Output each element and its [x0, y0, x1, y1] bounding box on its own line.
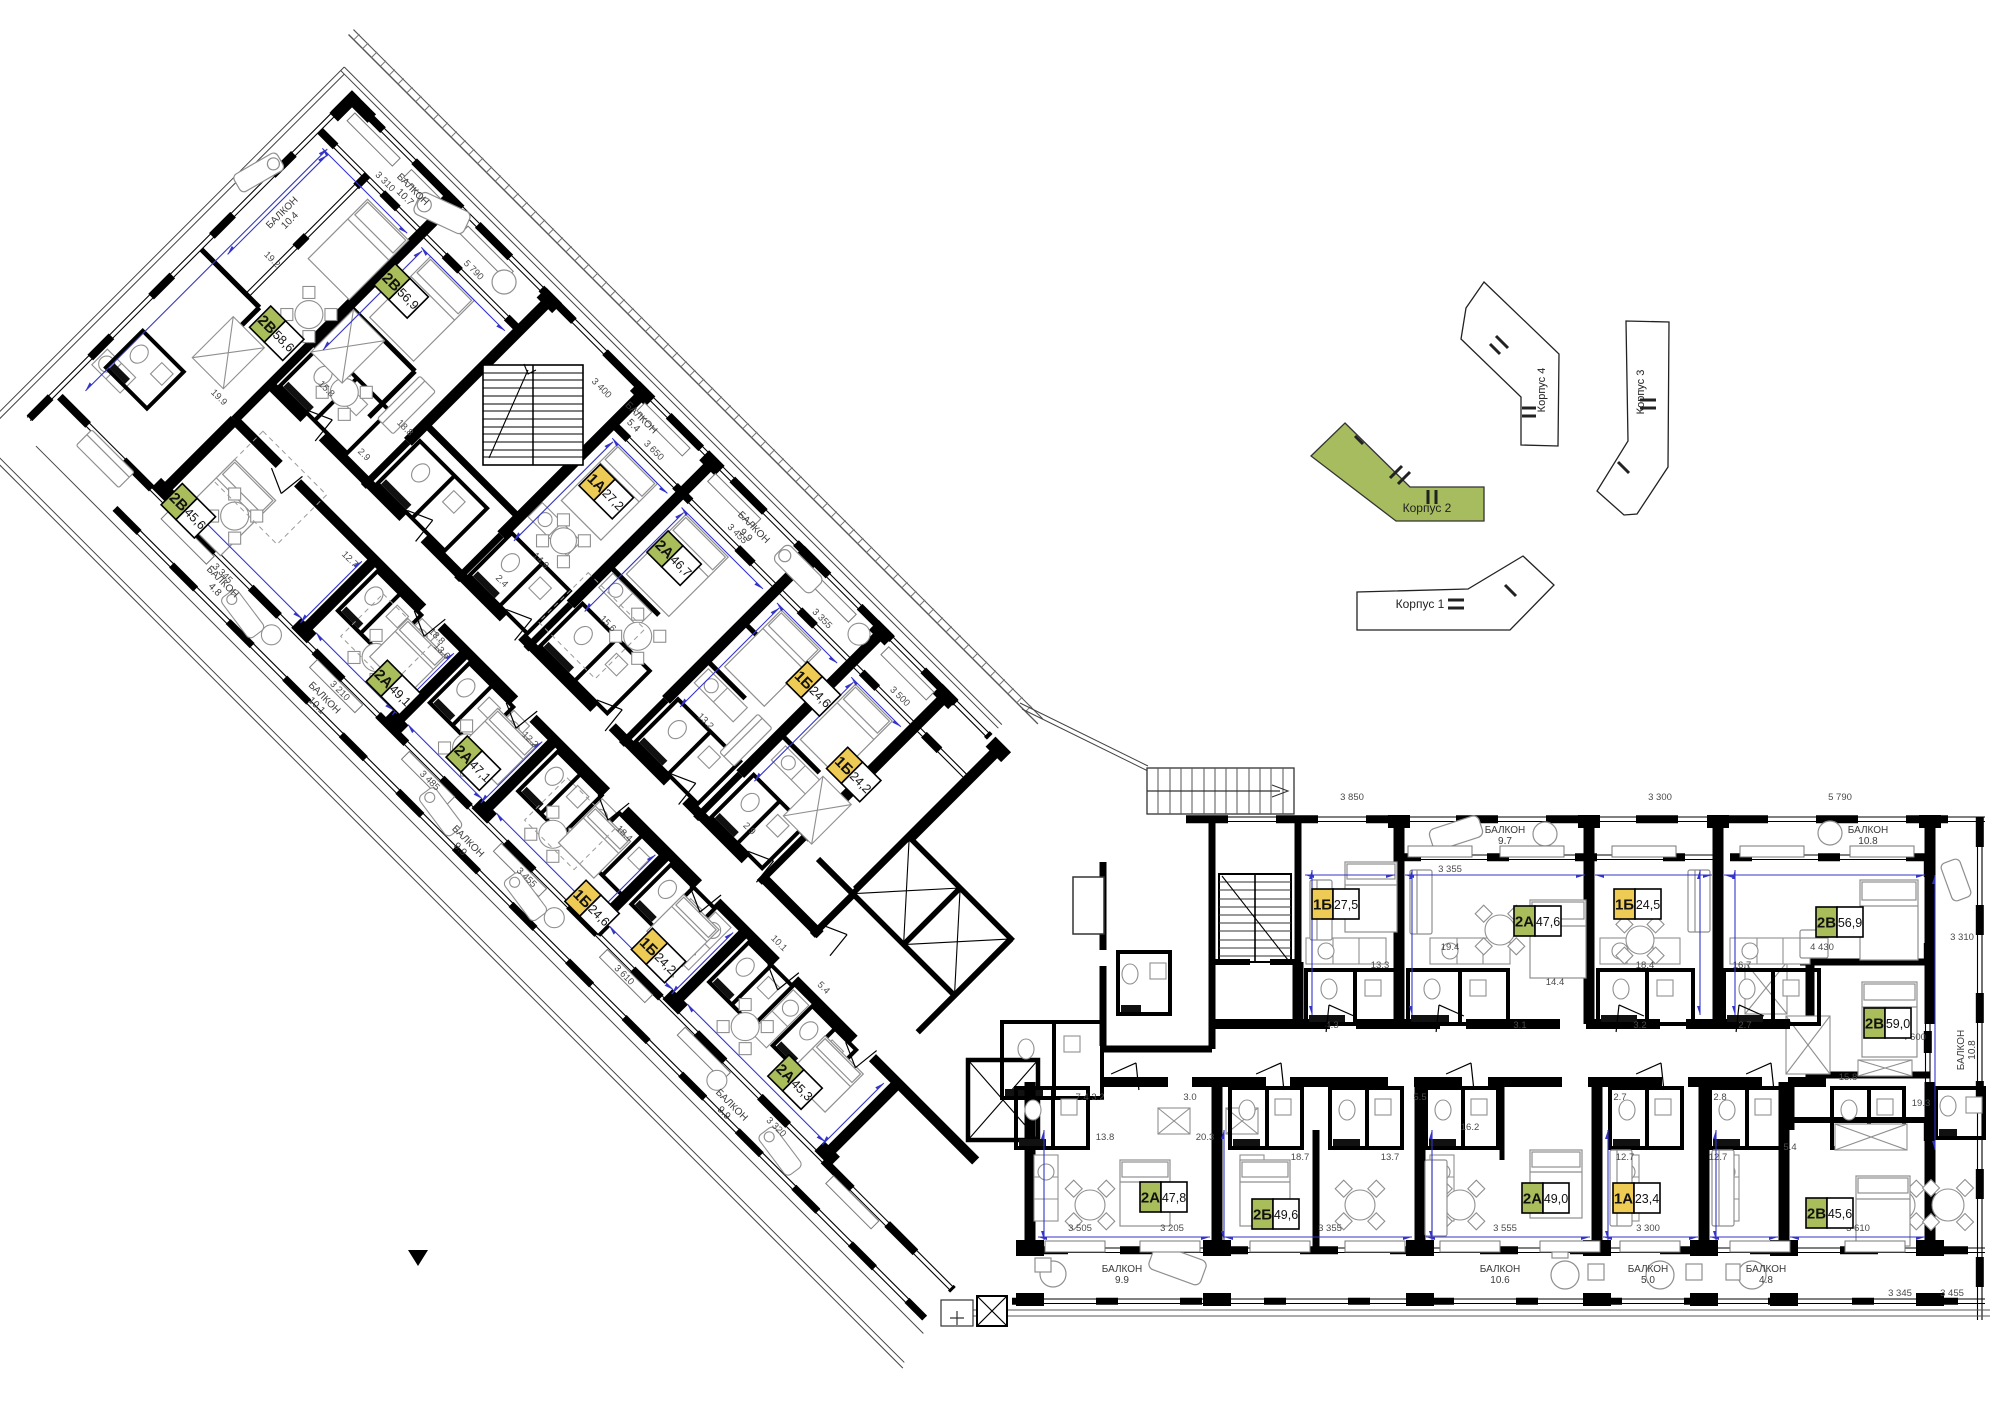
svg-text:10.6: 10.6: [1490, 1275, 1510, 1286]
svg-text:2.7: 2.7: [1738, 1020, 1751, 1031]
svg-text:БАЛКОН: БАЛКОН: [1746, 1264, 1787, 1275]
svg-text:49,6: 49,6: [1274, 1208, 1298, 1222]
svg-text:19.4: 19.4: [1441, 942, 1460, 953]
svg-text:2В: 2В: [1817, 915, 1836, 932]
svg-text:16.7: 16.7: [1733, 960, 1752, 971]
svg-text:БАЛКОН: БАЛКОН: [1480, 1264, 1521, 1275]
svg-text:1Б: 1Б: [1615, 897, 1634, 914]
svg-text:15.8: 15.8: [1839, 1072, 1858, 1083]
svg-text:Корпус 4: Корпус 4: [1536, 368, 1548, 413]
svg-text:13.7: 13.7: [1381, 1152, 1400, 1163]
svg-text:5.0: 5.0: [1641, 1275, 1655, 1286]
svg-text:БАЛКОН: БАЛКОН: [1628, 1264, 1669, 1275]
svg-text:20.3: 20.3: [1196, 1132, 1215, 1143]
svg-text:Корпус 3: Корпус 3: [1635, 370, 1647, 415]
svg-text:18.4: 18.4: [1636, 960, 1655, 971]
svg-text:47,8: 47,8: [1162, 1191, 1186, 1205]
svg-text:3 850: 3 850: [1340, 792, 1364, 803]
svg-text:4.8: 4.8: [1759, 1275, 1773, 1286]
svg-text:12.7: 12.7: [1709, 1152, 1728, 1163]
svg-text:БАЛКОН: БАЛКОН: [1102, 1264, 1143, 1275]
svg-text:3 300: 3 300: [1648, 792, 1672, 803]
svg-text:3 355: 3 355: [1318, 1223, 1342, 1234]
svg-text:56,9: 56,9: [1838, 916, 1862, 930]
svg-text:5.4: 5.4: [1783, 1142, 1796, 1153]
svg-text:1А: 1А: [1614, 1191, 1633, 1208]
svg-text:5.5: 5.5: [1413, 1092, 1426, 1103]
svg-text:БАЛКОН: БАЛКОН: [1956, 1030, 1967, 1071]
svg-text:27,5: 27,5: [1334, 898, 1358, 912]
svg-text:3 455: 3 455: [1940, 1288, 1964, 1299]
svg-text:3 555: 3 555: [1493, 1223, 1517, 1234]
svg-text:7.4 3.2: 7.4 3.2: [1075, 1092, 1104, 1103]
svg-text:Корпус 2: Корпус 2: [1403, 501, 1452, 515]
svg-text:9.7: 9.7: [1498, 836, 1512, 847]
svg-text:3 300: 3 300: [1636, 1223, 1660, 1234]
svg-text:10.8: 10.8: [1858, 836, 1878, 847]
svg-text:16.2: 16.2: [1461, 1122, 1480, 1133]
svg-text:2Б: 2Б: [1253, 1207, 1272, 1224]
svg-text:2А: 2А: [1523, 1191, 1542, 1208]
svg-text:10.8: 10.8: [1967, 1040, 1978, 1060]
svg-text:9.9: 9.9: [1115, 1275, 1129, 1286]
svg-text:2А: 2А: [1515, 914, 1534, 931]
svg-text:4 430: 4 430: [1810, 942, 1834, 953]
svg-text:3.1: 3.1: [1513, 1020, 1526, 1031]
svg-text:47,6: 47,6: [1536, 915, 1560, 929]
svg-text:2.8: 2.8: [1713, 1092, 1726, 1103]
svg-text:19.3: 19.3: [1912, 1098, 1931, 1109]
svg-text:3.2: 3.2: [1633, 1020, 1646, 1031]
svg-text:Корпус 1: Корпус 1: [1396, 597, 1445, 611]
svg-text:3 205: 3 205: [1160, 1223, 1184, 1234]
svg-text:3.0: 3.0: [1183, 1092, 1196, 1103]
svg-text:14.4: 14.4: [1546, 977, 1565, 988]
svg-text:2В: 2В: [1865, 1016, 1884, 1033]
svg-text:3 310: 3 310: [1950, 932, 1974, 943]
svg-text:1Б: 1Б: [1313, 897, 1332, 914]
svg-text:2В: 2В: [1807, 1206, 1826, 1223]
svg-text:5 790: 5 790: [1828, 792, 1852, 803]
svg-text:БАЛКОН: БАЛКОН: [1848, 825, 1889, 836]
svg-text:13.3: 13.3: [1371, 960, 1390, 971]
svg-text:3 345: 3 345: [1888, 1288, 1912, 1299]
svg-text:13.8: 13.8: [1096, 1132, 1115, 1143]
svg-text:3 355: 3 355: [1438, 864, 1462, 875]
svg-text:18.7: 18.7: [1291, 1152, 1310, 1163]
svg-text:59,0: 59,0: [1886, 1017, 1910, 1031]
svg-text:45,6: 45,6: [1828, 1207, 1852, 1221]
svg-text:24,5: 24,5: [1636, 898, 1660, 912]
svg-text:12.7: 12.7: [1616, 1152, 1635, 1163]
svg-text:БАЛКОН: БАЛКОН: [1485, 825, 1526, 836]
svg-text:2А: 2А: [1141, 1190, 1160, 1207]
svg-text:49,0: 49,0: [1544, 1192, 1568, 1206]
svg-text:23,4: 23,4: [1635, 1192, 1659, 1206]
svg-text:2.7: 2.7: [1613, 1092, 1626, 1103]
svg-text:3 505: 3 505: [1068, 1223, 1092, 1234]
